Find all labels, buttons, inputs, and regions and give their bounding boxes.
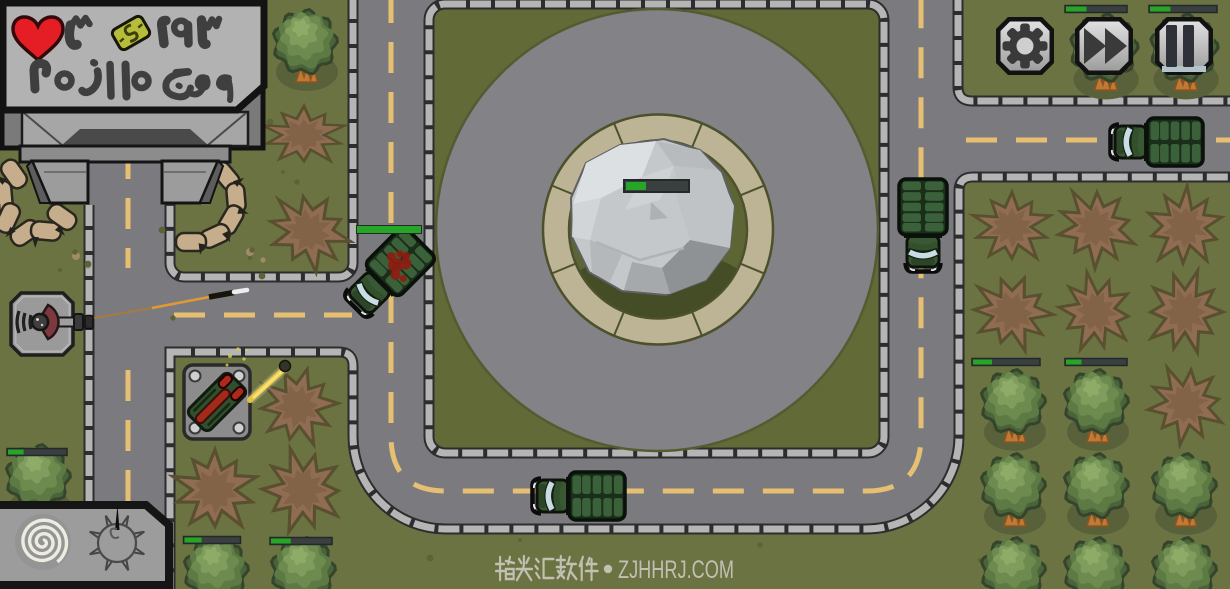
- svg-text:ZJHHRJ.COM: ZJHHRJ.COM: [618, 556, 734, 584]
